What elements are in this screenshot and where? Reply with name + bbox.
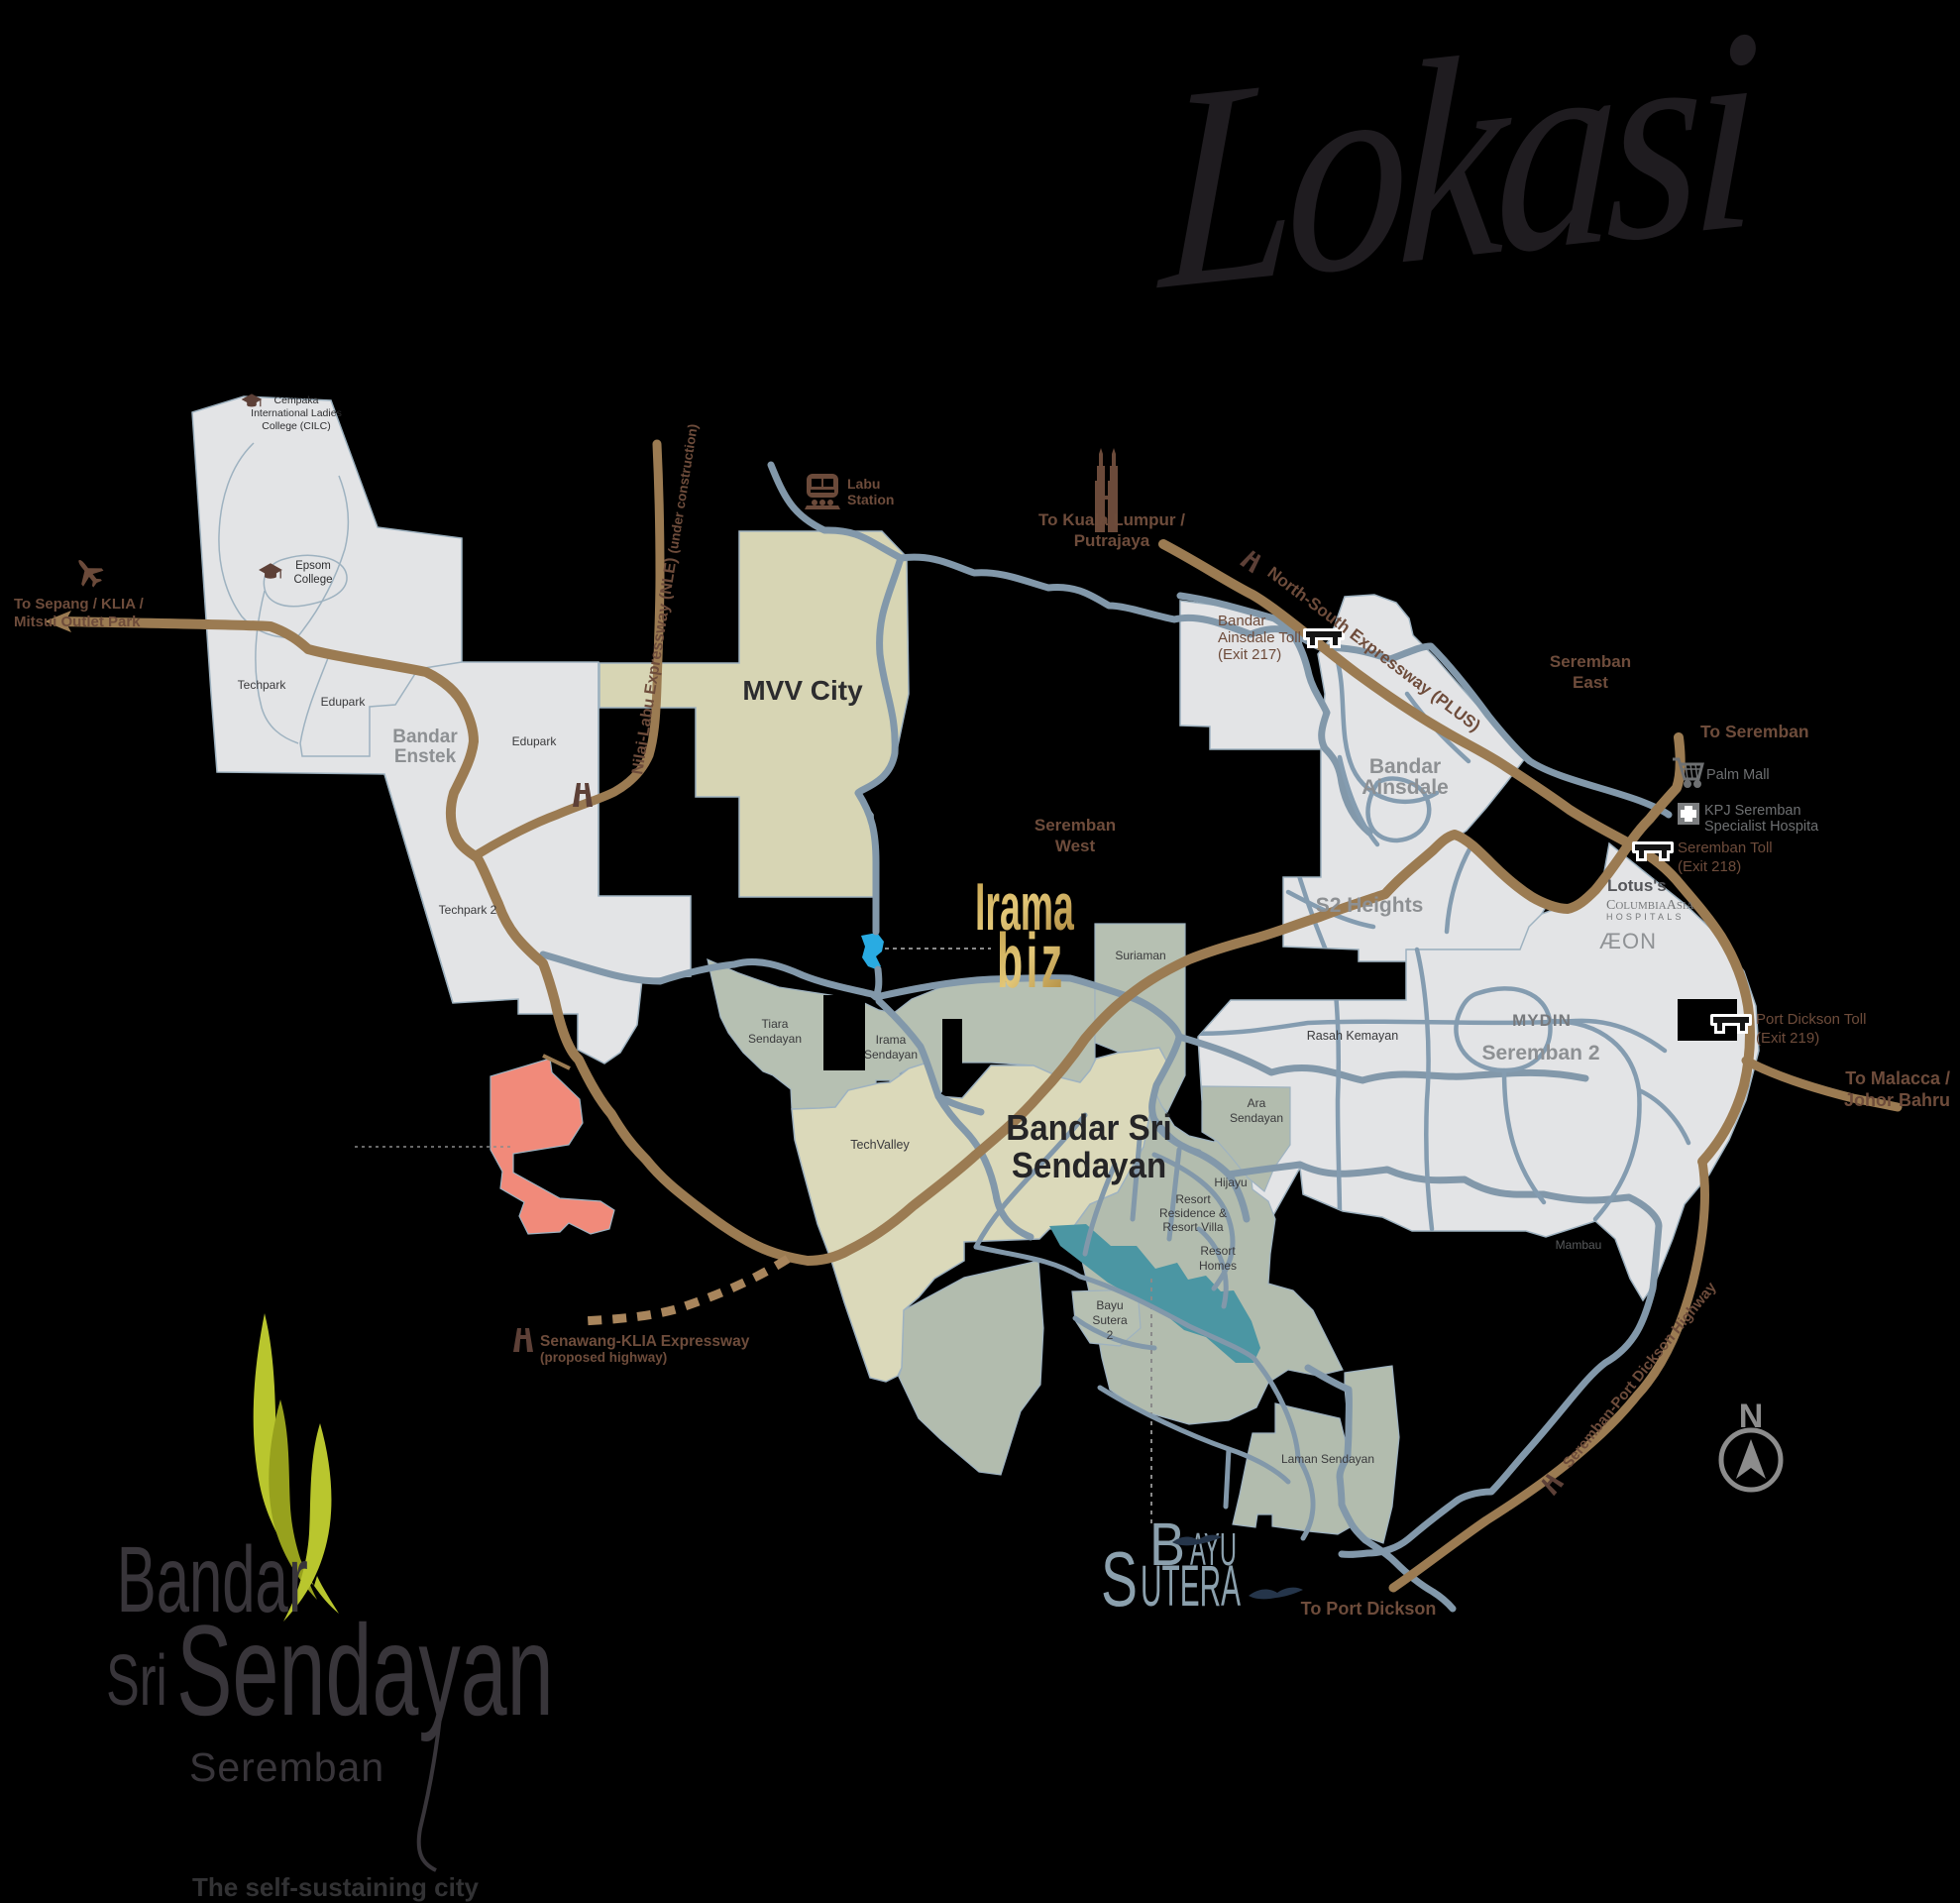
svg-text:Sendayan: Sendayan xyxy=(176,1600,554,1743)
svg-text:Cempaka: Cempaka xyxy=(274,394,319,406)
svg-text:International Ladies: International Ladies xyxy=(251,407,342,419)
svg-text:KPJ Seremban: KPJ Seremban xyxy=(1704,803,1801,819)
svg-text:Bandar: Bandar xyxy=(1369,755,1441,778)
svg-text:Epsom: Epsom xyxy=(295,560,331,572)
svg-text:Sendayan: Sendayan xyxy=(1230,1111,1283,1125)
svg-text:Enstek: Enstek xyxy=(394,746,457,767)
svg-text:Port Dickson Toll: Port Dickson Toll xyxy=(1756,1011,1866,1028)
svg-text:Resort: Resort xyxy=(1200,1244,1236,1258)
svg-text:Bandar: Bandar xyxy=(392,727,458,747)
svg-text:East: East xyxy=(1573,673,1608,692)
svg-text:To Seremban: To Seremban xyxy=(1700,722,1809,741)
svg-text:Sendayan: Sendayan xyxy=(864,1048,918,1062)
svg-text:MVV City: MVV City xyxy=(742,675,863,706)
svg-text:UTERA: UTERA xyxy=(1141,1554,1241,1619)
svg-text:Senawang-KLIA Expressway: Senawang-KLIA Expressway xyxy=(540,1333,750,1350)
svg-text:Edupark: Edupark xyxy=(512,734,558,748)
svg-text:Specialist Hospita: Specialist Hospita xyxy=(1704,819,1819,835)
svg-text:S: S xyxy=(1101,1535,1138,1623)
svg-text:2: 2 xyxy=(1107,1328,1114,1342)
svg-text:(Exit 219): (Exit 219) xyxy=(1756,1030,1819,1047)
svg-text:Irama: Irama xyxy=(876,1033,907,1047)
svg-text:Ainsdale: Ainsdale xyxy=(1361,776,1449,799)
svg-text:(proposed highway): (proposed highway) xyxy=(540,1350,667,1365)
svg-text:Laman Sendayan: Laman Sendayan xyxy=(1281,1452,1374,1466)
svg-text:ÆON: ÆON xyxy=(1599,929,1657,953)
svg-text:HOSPITALS: HOSPITALS xyxy=(1606,912,1685,922)
svg-text:To Sepang / KLIA /: To Sepang / KLIA / xyxy=(14,596,145,613)
svg-text:Seremban: Seremban xyxy=(1550,652,1631,671)
svg-text:To Malacca /: To Malacca / xyxy=(1845,1068,1950,1088)
svg-text:West: West xyxy=(1055,837,1096,855)
svg-text:S2 Heights: S2 Heights xyxy=(1316,894,1424,917)
svg-text:COLUMBIAASIA: COLUMBIAASIA xyxy=(1606,898,1694,913)
svg-text:To Port Dickson: To Port Dickson xyxy=(1301,1599,1437,1619)
svg-text:Labu: Labu xyxy=(847,476,880,492)
svg-text:Johor Bahru: Johor Bahru xyxy=(1844,1090,1950,1110)
svg-text:biz: biz xyxy=(997,919,1065,1005)
svg-text:Bandar Sri: Bandar Sri xyxy=(1006,1109,1171,1149)
svg-text:Suriaman: Suriaman xyxy=(1115,949,1165,962)
svg-text:College: College xyxy=(294,574,333,586)
svg-text:Rasah Kemayan: Rasah Kemayan xyxy=(1307,1029,1398,1043)
svg-text:Edupark: Edupark xyxy=(321,695,367,709)
svg-text:Seremban: Seremban xyxy=(189,1744,384,1790)
svg-text:Sutera: Sutera xyxy=(1092,1313,1128,1327)
svg-text:(Exit 218): (Exit 218) xyxy=(1678,858,1741,875)
svg-text:Lotus's: Lotus's xyxy=(1607,876,1667,895)
svg-text:Ainsdale Toll: Ainsdale Toll xyxy=(1218,629,1301,646)
svg-text:Seremban Toll: Seremban Toll xyxy=(1678,840,1773,856)
svg-text:Sendayan: Sendayan xyxy=(748,1032,802,1046)
svg-text:Bandar: Bandar xyxy=(1218,613,1265,629)
svg-text:The self-sustaining city: The self-sustaining city xyxy=(192,1872,479,1902)
svg-text:TechValley: TechValley xyxy=(850,1138,910,1152)
svg-text:Mitsui Outlet Park: Mitsui Outlet Park xyxy=(14,614,141,630)
svg-text:Resort: Resort xyxy=(1175,1192,1211,1206)
svg-text:Hijayu: Hijayu xyxy=(1214,1175,1247,1189)
svg-text:College (CILC): College (CILC) xyxy=(262,420,330,432)
svg-text:MYDIN: MYDIN xyxy=(1512,1011,1572,1030)
svg-text:N: N xyxy=(1739,1398,1764,1435)
svg-text:Resort Villa: Resort Villa xyxy=(1162,1220,1223,1234)
svg-text:Palm Mall: Palm Mall xyxy=(1706,767,1770,783)
svg-text:Seremban 2: Seremban 2 xyxy=(1481,1042,1599,1064)
svg-text:Seremban: Seremban xyxy=(1034,816,1116,835)
svg-text:To Kuala Lumpur /: To Kuala Lumpur / xyxy=(1038,510,1185,529)
svg-text:Station: Station xyxy=(847,492,894,507)
svg-text:(Exit 217): (Exit 217) xyxy=(1218,646,1281,663)
svg-text:Bayu: Bayu xyxy=(1096,1298,1123,1312)
svg-text:Sendayan: Sendayan xyxy=(1012,1147,1166,1186)
svg-text:Techpark: Techpark xyxy=(238,678,287,692)
svg-text:Ara: Ara xyxy=(1248,1096,1266,1110)
svg-text:Mambau: Mambau xyxy=(1556,1238,1602,1252)
svg-text:Residence &: Residence & xyxy=(1159,1206,1227,1220)
svg-text:Sri: Sri xyxy=(106,1641,167,1721)
svg-text:Homes: Homes xyxy=(1199,1259,1237,1273)
svg-text:Tiara: Tiara xyxy=(762,1017,789,1031)
svg-text:Putrajaya: Putrajaya xyxy=(1074,531,1150,550)
svg-text:Techpark 2: Techpark 2 xyxy=(439,903,497,917)
